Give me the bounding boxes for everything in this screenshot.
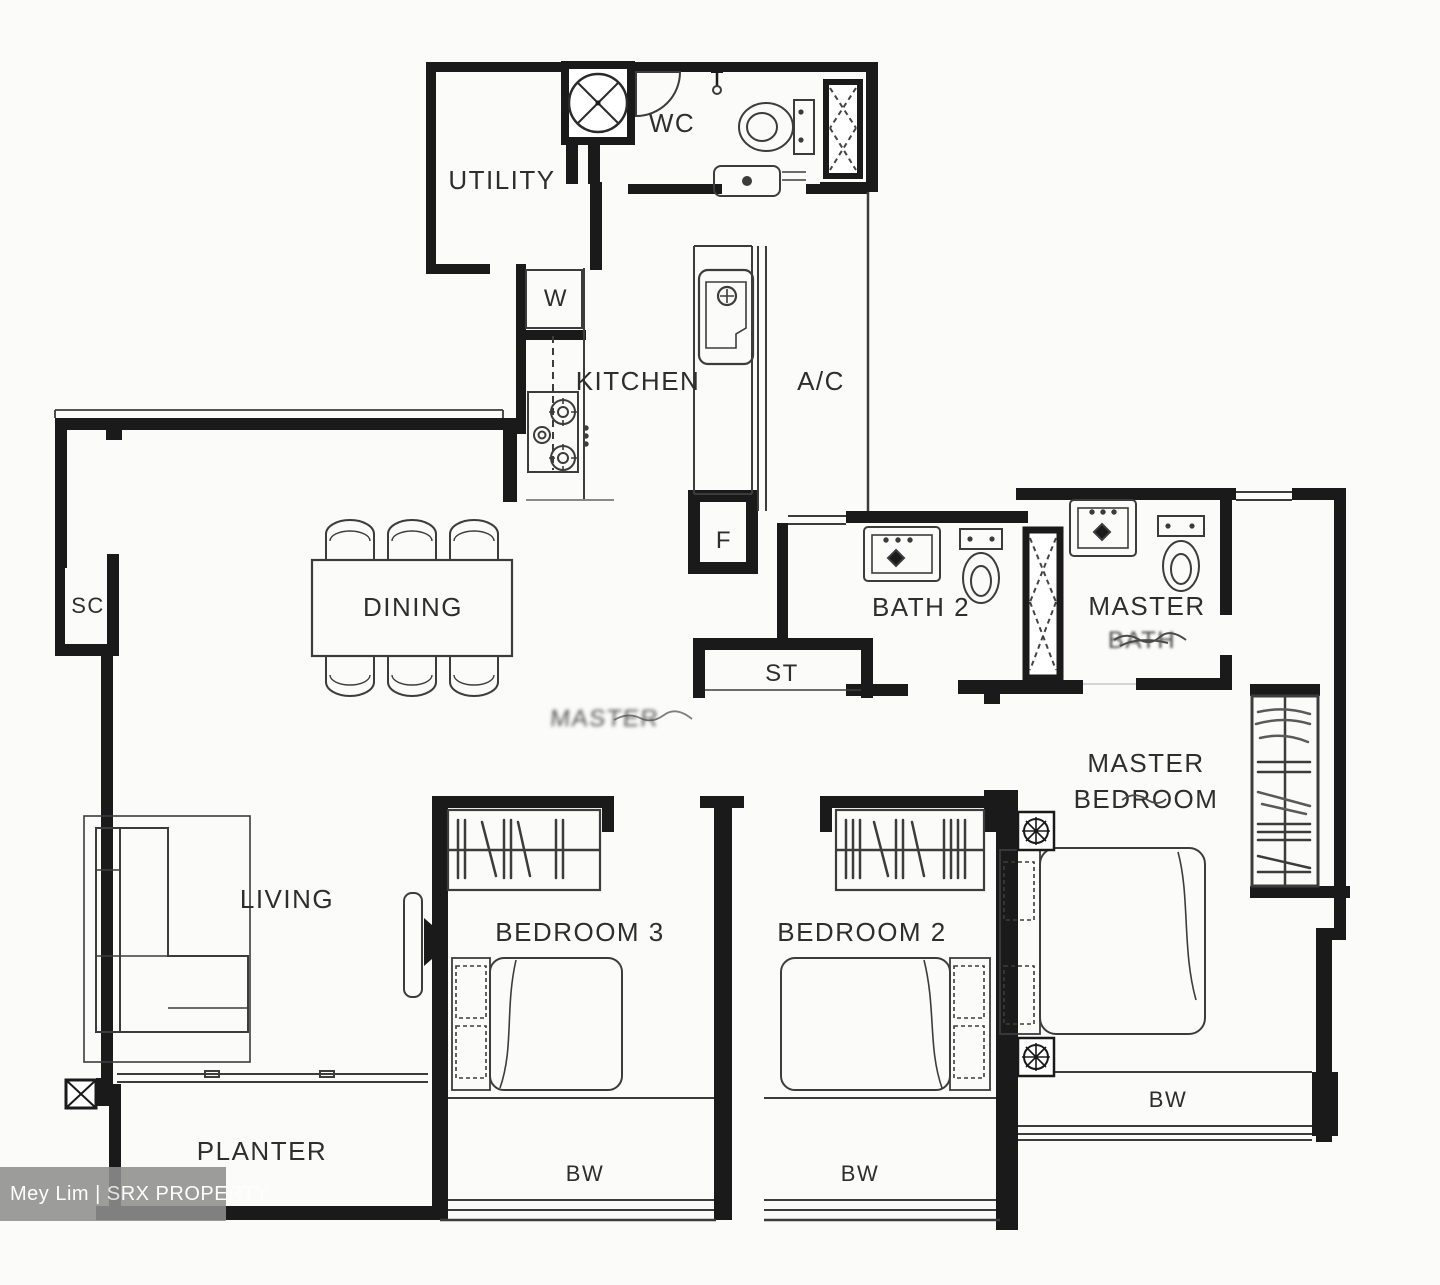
watermark-badge: Mey Lim | SRX PROPERTY <box>0 1167 226 1221</box>
stove-icon <box>528 392 588 472</box>
wardrobe-icon <box>448 810 600 890</box>
room-label-utility: UTILITY <box>448 165 555 195</box>
room-label-store: ST <box>765 660 799 687</box>
room-label-dining: DINING <box>363 592 463 622</box>
vanity-icon <box>864 527 940 581</box>
watermark-text: Mey Lim | SRX PROPERTY <box>10 1183 269 1206</box>
wardrobe-icon <box>836 810 984 890</box>
room-label-planter: PLANTER <box>197 1136 327 1166</box>
room-label-living: LIVING <box>240 884 334 914</box>
room-label-master-bedroom-line1: MASTER <box>1087 748 1204 778</box>
bed-icon <box>1000 848 1205 1034</box>
tap-icon <box>711 64 723 94</box>
room-label-bedroom3: BEDROOM 3 <box>495 917 665 947</box>
room-label-bedroom2: BEDROOM 2 <box>777 917 947 947</box>
room-label-washer: W <box>544 285 568 312</box>
bed-icon <box>452 958 622 1090</box>
floor-plan-drawing: UTILITY WC W KITCHEN A/C F DINING SC BAT… <box>0 0 1440 1285</box>
fcu-icon <box>1018 812 1054 850</box>
vanity-icon <box>1070 500 1136 556</box>
fcu-icon <box>1018 1038 1054 1076</box>
toilet-icon <box>1158 516 1204 591</box>
duct-shaft-icon <box>1026 530 1060 678</box>
room-label-shoe-cabinet: SC <box>71 593 105 618</box>
room-label-master-bath-line1: MASTER <box>1088 591 1205 621</box>
room-label-bw-master: BW <box>1149 1087 1187 1112</box>
room-label-fridge: F <box>716 527 732 554</box>
wardrobe-icon <box>1252 696 1318 886</box>
structure-lines <box>55 192 1312 1220</box>
room-label-bw-bedroom3: BW <box>566 1161 604 1186</box>
ventilation-shaft-icon <box>565 65 631 141</box>
kitchen-sink-icon <box>699 270 753 364</box>
floor-plan-page: UTILITY WC W KITCHEN A/C F DINING SC BAT… <box>0 0 1440 1285</box>
room-label-bath2: BATH 2 <box>872 592 970 622</box>
bed-icon <box>781 958 990 1090</box>
toilet-icon <box>739 100 814 154</box>
room-label-kitchen: KITCHEN <box>576 366 701 396</box>
tv-console-icon <box>404 893 432 997</box>
room-label-bw-bedroom2: BW <box>841 1161 879 1186</box>
column-icon <box>66 1080 96 1108</box>
duct-shaft-icon <box>826 82 860 176</box>
room-label-aircon: A/C <box>797 366 845 396</box>
basin-icon <box>714 166 806 196</box>
room-label-wc: WC <box>649 108 695 138</box>
